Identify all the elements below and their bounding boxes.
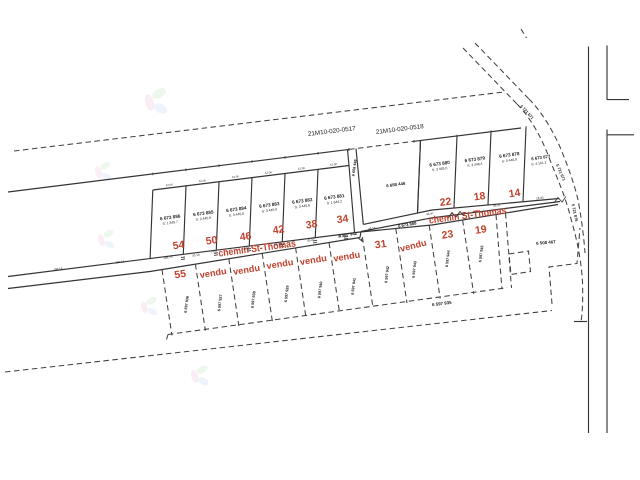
svg-text:14: 14 <box>508 187 521 201</box>
svg-text:18: 18 <box>473 190 486 204</box>
svg-text:55: 55 <box>174 268 187 282</box>
svg-text:42: 42 <box>272 223 285 237</box>
svg-text:22: 22 <box>439 195 452 209</box>
svg-text:46: 46 <box>239 230 252 244</box>
svg-text:34: 34 <box>336 213 349 227</box>
svg-text:54: 54 <box>172 239 185 253</box>
svg-text:31: 31 <box>374 238 387 252</box>
svg-text:7.50: 7.50 <box>211 250 218 255</box>
svg-text:19: 19 <box>474 223 487 237</box>
svg-text:50: 50 <box>205 234 218 248</box>
svg-text:38: 38 <box>305 218 318 232</box>
svg-text:23: 23 <box>441 228 454 242</box>
